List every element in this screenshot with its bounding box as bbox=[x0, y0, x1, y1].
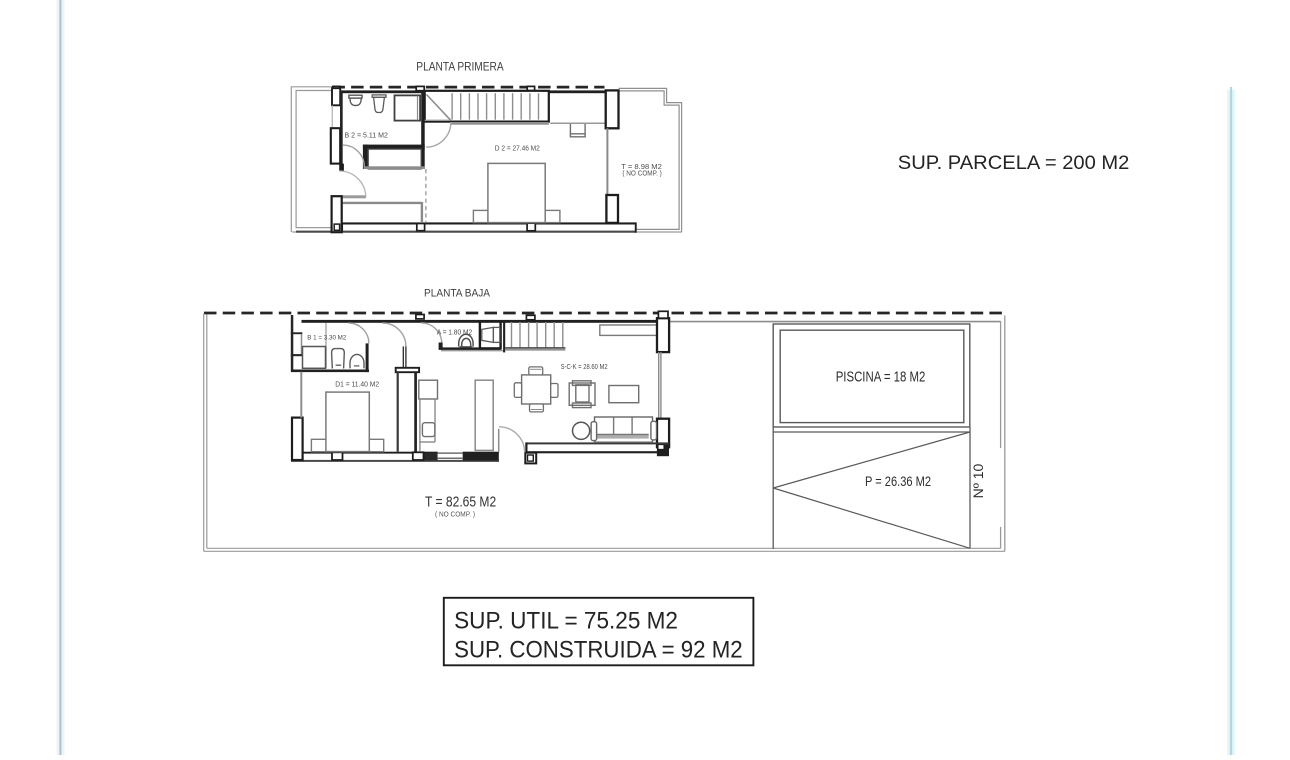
svg-text:T = 82.65 M2: T = 82.65 M2 bbox=[425, 495, 496, 511]
svg-text:D1 = 11.40 M2: D1 = 11.40 M2 bbox=[335, 379, 379, 388]
svg-text:P = 26.36 M2: P = 26.36 M2 bbox=[865, 474, 931, 489]
svg-text:Nº 10: Nº 10 bbox=[970, 463, 986, 498]
svg-text:T = 8.98 M2: T = 8.98 M2 bbox=[621, 162, 662, 171]
svg-text:S-C-K = 28.60 M2: S-C-K = 28.60 M2 bbox=[561, 362, 608, 371]
svg-text:D 2 = 27.46 M2: D 2 = 27.46 M2 bbox=[495, 144, 540, 153]
svg-text:B 1 = 3.30 M2: B 1 = 3.30 M2 bbox=[307, 334, 346, 341]
svg-text:( NO COMP. ): ( NO COMP. ) bbox=[435, 511, 475, 518]
svg-text:PLANTA BAJA: PLANTA BAJA bbox=[424, 288, 490, 300]
svg-text:PISCINA = 18 M2: PISCINA = 18 M2 bbox=[836, 370, 926, 386]
svg-text:SUP. PARCELA = 200 M2: SUP. PARCELA = 200 M2 bbox=[898, 152, 1130, 174]
svg-text:PLANTA PRIMERA: PLANTA PRIMERA bbox=[416, 60, 504, 73]
svg-text:SUP. UTIL = 75.25 M2: SUP. UTIL = 75.25 M2 bbox=[454, 607, 678, 634]
svg-text:SUP. CONSTRUIDA = 92 M2: SUP. CONSTRUIDA = 92 M2 bbox=[454, 637, 743, 664]
svg-text:( NO COMP. ): ( NO COMP. ) bbox=[622, 171, 661, 178]
svg-text:B 2 = 5.11 M2: B 2 = 5.11 M2 bbox=[345, 130, 388, 139]
